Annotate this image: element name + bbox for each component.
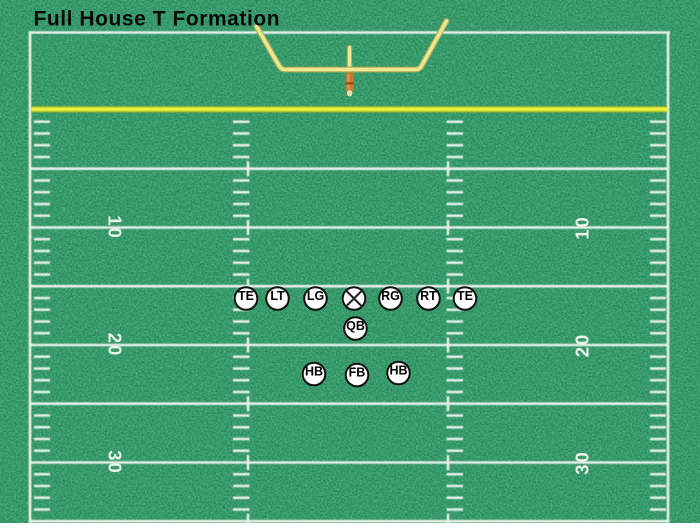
svg-text:LT: LT xyxy=(270,289,285,303)
svg-text:30: 30 xyxy=(105,450,126,475)
svg-text:LG: LG xyxy=(307,289,324,303)
svg-text:TE: TE xyxy=(238,289,254,303)
svg-text:HB: HB xyxy=(305,365,323,379)
svg-text:FB: FB xyxy=(349,366,366,380)
svg-text:RT: RT xyxy=(420,289,437,303)
svg-text:HB: HB xyxy=(389,364,407,378)
svg-text:20: 20 xyxy=(105,333,126,358)
svg-text:RG: RG xyxy=(381,289,400,303)
svg-text:Full House T Formation: Full House T Formation xyxy=(34,8,281,31)
svg-text:TE: TE xyxy=(457,289,473,303)
svg-text:20: 20 xyxy=(571,333,592,358)
svg-text:QB: QB xyxy=(346,319,365,333)
svg-text:30: 30 xyxy=(571,450,592,475)
svg-text:10: 10 xyxy=(571,215,592,240)
svg-text:10: 10 xyxy=(105,215,126,240)
